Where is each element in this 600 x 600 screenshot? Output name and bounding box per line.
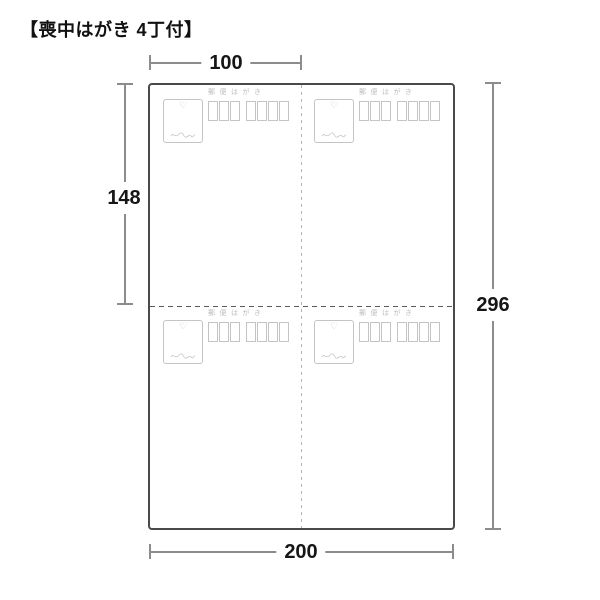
postal-code-box xyxy=(246,322,256,342)
dim-sheet-height-cap-bottom xyxy=(485,528,501,530)
dim-card-width-tick-right xyxy=(300,55,302,70)
postal-code-gap xyxy=(241,322,245,342)
postcard-3: ♡ 郵便はがき xyxy=(150,306,302,528)
postal-code-box xyxy=(230,322,240,342)
postal-code-gap xyxy=(241,101,245,121)
postal-code-box xyxy=(230,101,240,121)
postal-code-gap xyxy=(392,322,396,342)
postal-code-box xyxy=(279,101,289,121)
postal-code-box xyxy=(359,101,369,121)
heart-icon: ♡ xyxy=(179,100,187,110)
postal-code-box xyxy=(268,101,278,121)
postal-label: 郵便はがき xyxy=(208,309,266,318)
dim-card-height-cap-top xyxy=(117,83,133,85)
stamp-script-decoration xyxy=(170,130,196,139)
postal-code-boxes xyxy=(359,101,440,121)
dim-sheet-width-tick-left xyxy=(149,544,151,559)
postal-code-box xyxy=(381,322,391,342)
dim-sheet-height-cap-top xyxy=(485,82,501,84)
postal-code-box xyxy=(397,322,407,342)
postcard-sheet-diagram: 【喪中はがき 4丁付】 100 148 296 200 ♡ 郵便はがき xyxy=(0,0,600,600)
dim-card-height-cap-bottom xyxy=(117,303,133,305)
dim-sheet-width-tick-right xyxy=(452,544,454,559)
dim-card-width-tick-left xyxy=(149,55,151,70)
postal-code-box xyxy=(419,322,429,342)
stamp-script-decoration xyxy=(321,130,347,139)
stamp-box: ♡ xyxy=(314,320,354,364)
postal-code-box xyxy=(268,322,278,342)
postal-label: 郵便はがき xyxy=(359,88,417,97)
stamp-script-decoration xyxy=(170,351,196,360)
postal-code-box xyxy=(430,322,440,342)
dim-card-height-label: 148 xyxy=(103,182,144,214)
postal-code-box xyxy=(381,101,391,121)
postal-code-box xyxy=(208,322,218,342)
postal-code-boxes xyxy=(208,322,289,342)
postal-code-box xyxy=(219,322,229,342)
heart-icon: ♡ xyxy=(330,321,338,331)
postcard-4: ♡ 郵便はがき xyxy=(301,306,453,528)
postal-code-gap xyxy=(392,101,396,121)
postal-code-box xyxy=(246,101,256,121)
postcard-2: ♡ 郵便はがき xyxy=(301,85,453,307)
postal-code-box xyxy=(370,322,380,342)
dim-sheet-width-label: 200 xyxy=(276,541,325,563)
stamp-box: ♡ xyxy=(314,99,354,143)
postal-code-box xyxy=(208,101,218,121)
postal-code-box xyxy=(408,322,418,342)
stamp-box: ♡ xyxy=(163,320,203,364)
stamp-box: ♡ xyxy=(163,99,203,143)
stamp-script-decoration xyxy=(321,351,347,360)
postal-code-boxes xyxy=(208,101,289,121)
postal-code-box xyxy=(257,101,267,121)
postcard-1: ♡ 郵便はがき xyxy=(150,85,302,307)
postal-code-box xyxy=(419,101,429,121)
postal-code-box xyxy=(257,322,267,342)
sheet-outline: ♡ 郵便はがき ♡ 郵便はがき xyxy=(148,83,455,530)
heart-icon: ♡ xyxy=(179,321,187,331)
postal-code-box xyxy=(430,101,440,121)
postal-label: 郵便はがき xyxy=(359,309,417,318)
postal-code-boxes xyxy=(359,322,440,342)
postal-code-box xyxy=(397,101,407,121)
postal-code-box xyxy=(219,101,229,121)
dim-sheet-height-label: 296 xyxy=(472,289,513,321)
postal-label: 郵便はがき xyxy=(208,88,266,97)
page-title: 【喪中はがき 4丁付】 xyxy=(20,16,203,42)
dim-card-width-label: 100 xyxy=(201,52,250,74)
postal-code-box xyxy=(359,322,369,342)
postal-code-box xyxy=(279,322,289,342)
postal-code-box xyxy=(408,101,418,121)
heart-icon: ♡ xyxy=(330,100,338,110)
postal-code-box xyxy=(370,101,380,121)
